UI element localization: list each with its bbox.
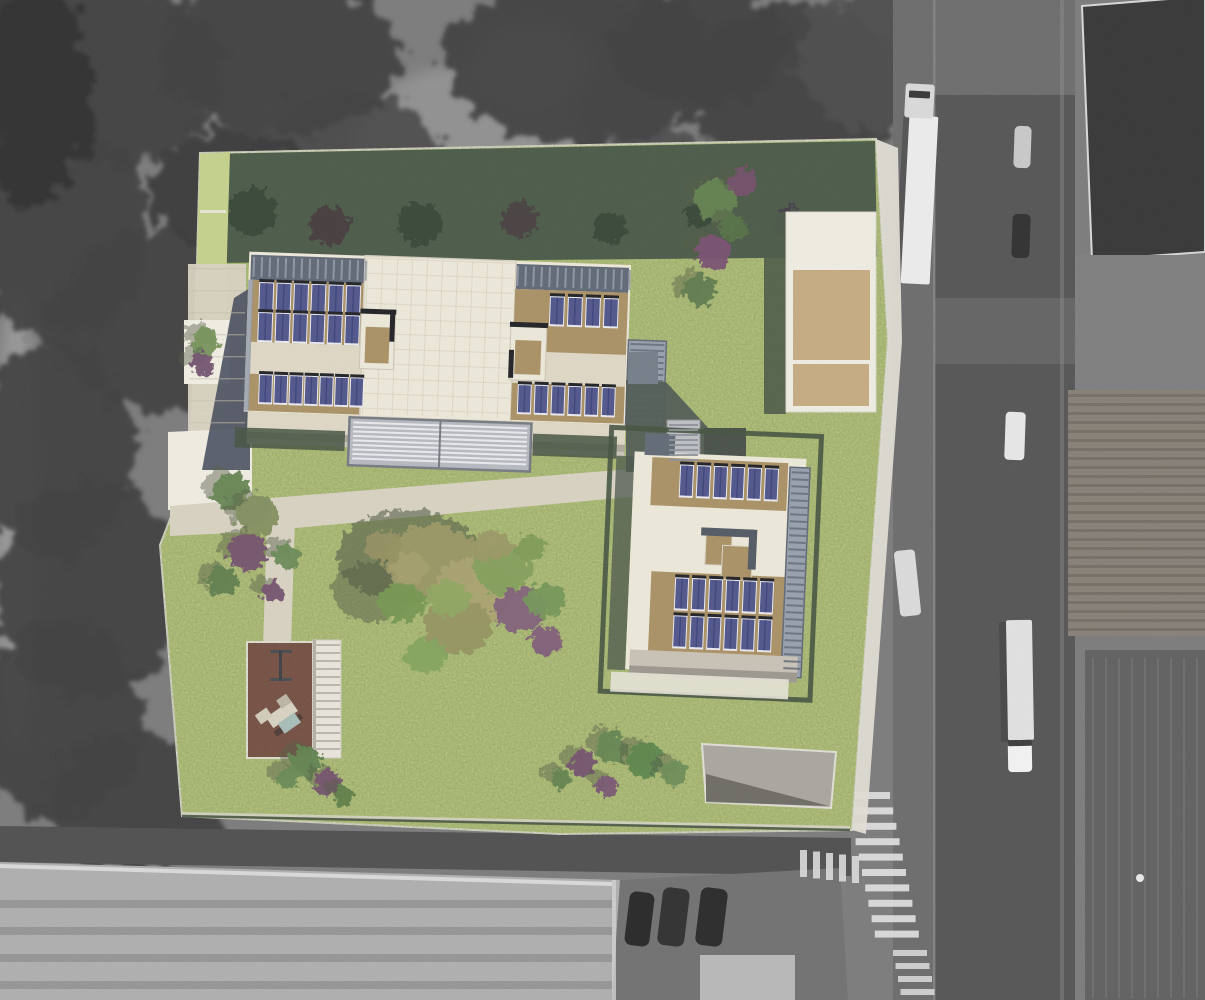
photo-grain-overlay [0, 0, 1205, 1000]
site-plan-canvas [0, 0, 1205, 1000]
aerial-site-plan-image [0, 0, 1205, 1000]
